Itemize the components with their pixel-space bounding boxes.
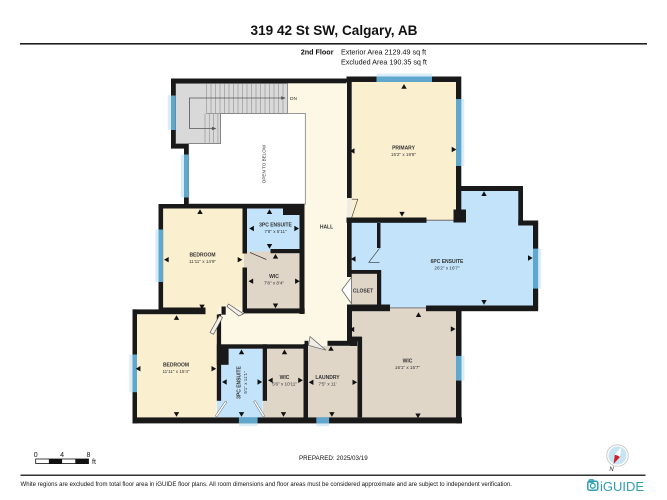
svg-text:5'1" x 11'1": 5'1" x 11'1" [243, 371, 248, 394]
svg-text:2nd Floor: 2nd Floor [301, 47, 334, 56]
svg-text:PREPARED: 2025/03/19: PREPARED: 2025/03/19 [299, 455, 368, 462]
svg-text:LAUNDRY: LAUNDRY [315, 375, 340, 381]
svg-text:PRIMARY: PRIMARY [392, 146, 416, 152]
svg-text:WIC: WIC [280, 375, 290, 381]
svg-text:Exterior Area 2129.49 sq ft: Exterior Area 2129.49 sq ft [341, 47, 426, 56]
svg-text:7'8" x 8'4": 7'8" x 8'4" [264, 281, 284, 286]
svg-text:16'1" x 15'7": 16'1" x 15'7" [395, 365, 421, 370]
svg-text:8: 8 [87, 452, 91, 459]
svg-text:WIC: WIC [269, 274, 279, 280]
svg-text:iGUIDE: iGUIDE [600, 479, 644, 494]
svg-text:26'2" x 16'7": 26'2" x 16'7" [434, 266, 460, 271]
svg-text:4: 4 [60, 452, 64, 459]
svg-text:ft: ft [92, 459, 96, 466]
svg-text:WIC: WIC [403, 359, 413, 365]
svg-text:5'6" x 10'11": 5'6" x 10'11" [272, 382, 297, 387]
svg-text:White regions are excluded fro: White regions are excluded from total fl… [21, 482, 513, 488]
svg-text:11'11" x 15'4": 11'11" x 15'4" [162, 369, 189, 374]
svg-text:15'2" x 19'8": 15'2" x 19'8" [391, 152, 417, 157]
svg-text:OPEN TO BELOW: OPEN TO BELOW [262, 144, 267, 183]
svg-text:N: N [609, 467, 614, 473]
svg-text:CLOSET: CLOSET [353, 288, 373, 294]
svg-text:7'8" x 5'11": 7'8" x 5'11" [264, 229, 287, 234]
svg-text:7'5" x 11': 7'5" x 11' [318, 382, 336, 387]
svg-text:DN: DN [290, 96, 297, 102]
svg-text:HALL: HALL [320, 225, 333, 231]
svg-text:0: 0 [34, 452, 38, 459]
svg-text:6PC ENSUITE: 6PC ENSUITE [431, 259, 464, 265]
svg-text:BEDROOM: BEDROOM [189, 253, 215, 259]
svg-text:Excluded Area 190.35 sq ft: Excluded Area 190.35 sq ft [341, 57, 427, 66]
svg-text:3PC ENSUITE: 3PC ENSUITE [259, 223, 292, 229]
svg-text:319 42 St SW, Calgary, AB: 319 42 St SW, Calgary, AB [251, 23, 418, 38]
svg-text:3PC ENSUITE: 3PC ENSUITE [237, 365, 243, 398]
svg-text:11'11" x 14'9": 11'11" x 14'9" [189, 259, 216, 264]
svg-text:BEDROOM: BEDROOM [163, 363, 189, 369]
